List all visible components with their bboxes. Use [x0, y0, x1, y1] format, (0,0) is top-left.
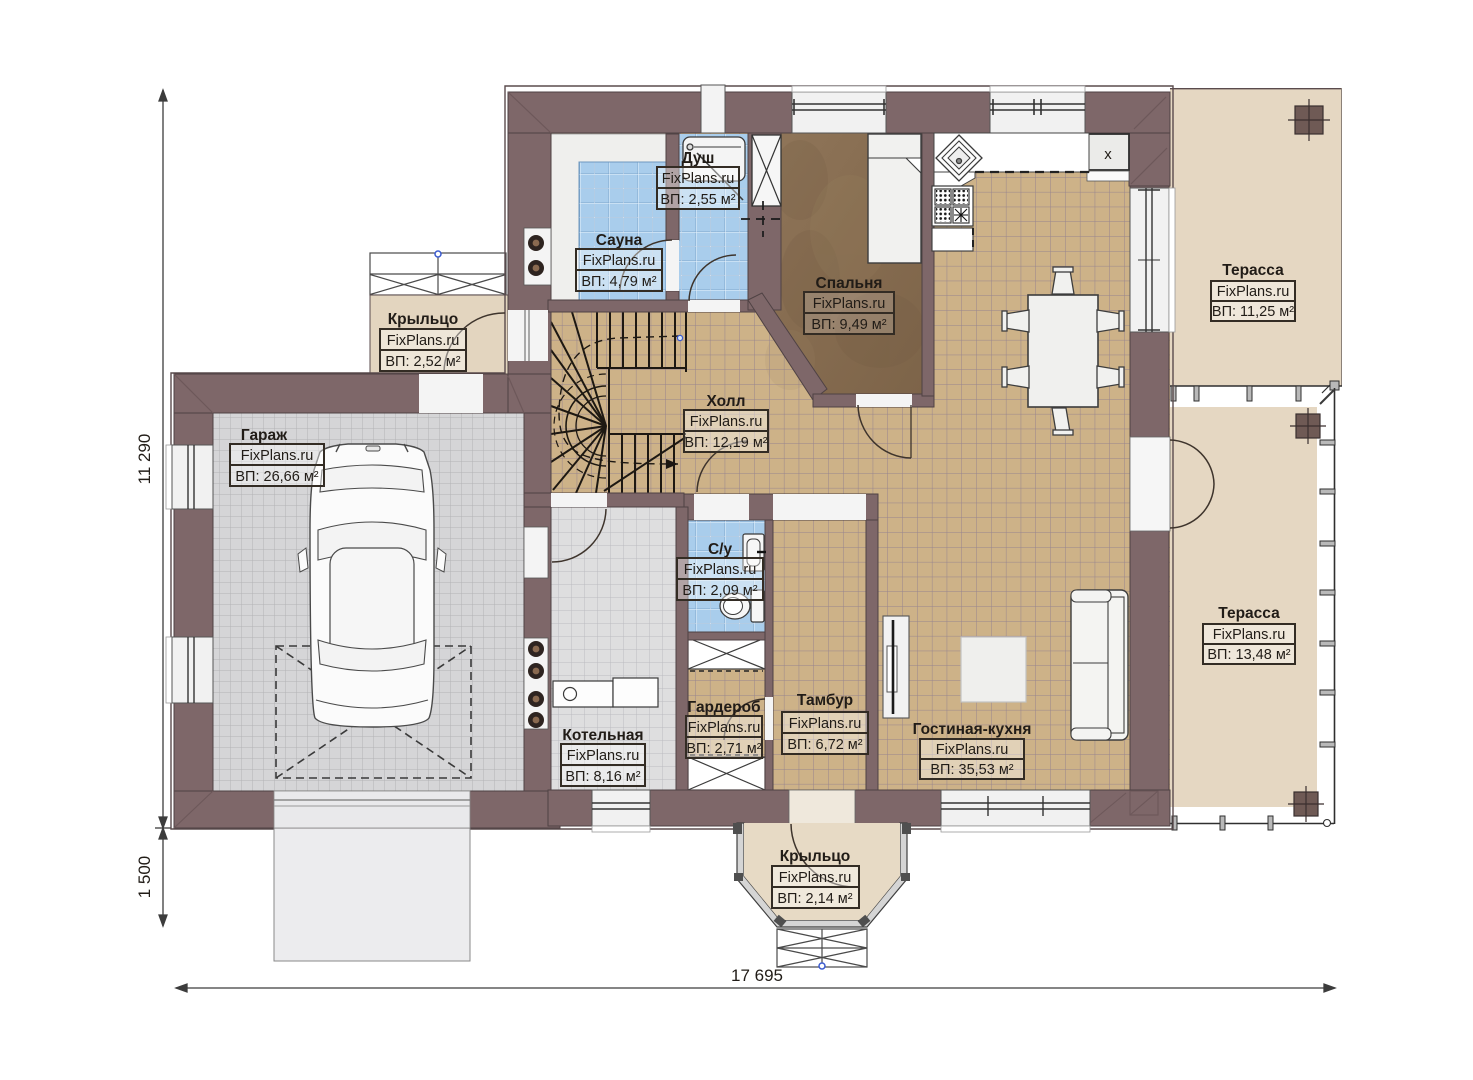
svg-text:ВП: 26,66 м²: ВП: 26,66 м² [235, 469, 318, 485]
svg-text:Терасса: Терасса [1222, 262, 1284, 279]
svg-text:FixPlans.ru: FixPlans.ru [567, 748, 640, 764]
svg-text:FixPlans.ru: FixPlans.ru [779, 870, 852, 886]
svg-text:Терасса: Терасса [1218, 605, 1280, 622]
svg-text:ВП: 12,19 м²: ВП: 12,19 м² [684, 435, 767, 451]
svg-text:ВП: 2,09 м²: ВП: 2,09 м² [682, 583, 757, 599]
svg-text:1 500: 1 500 [135, 856, 154, 899]
svg-text:ВП: 35,53 м²: ВП: 35,53 м² [930, 762, 1013, 778]
svg-text:Гостиная-кухня: Гостиная-кухня [913, 721, 1032, 738]
svg-text:FixPlans.ru: FixPlans.ru [387, 333, 460, 349]
svg-text:Душ: Душ [682, 150, 715, 167]
svg-text:ВП: 8,16 м²: ВП: 8,16 м² [565, 769, 640, 785]
svg-text:ВП: 2,14 м²: ВП: 2,14 м² [777, 891, 852, 907]
svg-text:ВП: 9,49 м²: ВП: 9,49 м² [811, 317, 886, 333]
svg-text:С/у: С/у [708, 541, 733, 558]
svg-text:FixPlans.ru: FixPlans.ru [1217, 284, 1290, 300]
svg-text:Котельная: Котельная [562, 727, 643, 744]
svg-text:FixPlans.ru: FixPlans.ru [583, 253, 656, 269]
svg-text:FixPlans.ru: FixPlans.ru [662, 171, 735, 187]
svg-text:Холл: Холл [707, 393, 746, 410]
svg-text:Тамбур: Тамбур [797, 692, 853, 709]
svg-text:ВП: 6,72 м²: ВП: 6,72 м² [787, 737, 862, 753]
svg-text:11 290: 11 290 [135, 434, 154, 485]
svg-text:ВП: 2,71 м²: ВП: 2,71 м² [686, 741, 761, 757]
svg-text:FixPlans.ru: FixPlans.ru [789, 716, 862, 732]
svg-text:Крыльцо: Крыльцо [388, 311, 459, 328]
svg-text:ВП: 2,52 м²: ВП: 2,52 м² [385, 354, 460, 370]
svg-text:Сауна: Сауна [596, 232, 643, 249]
svg-text:x: x [1104, 146, 1112, 163]
svg-text:Крыльцо: Крыльцо [780, 848, 851, 865]
svg-text:Спальня: Спальня [816, 275, 883, 292]
svg-text:Гардероб: Гардероб [687, 699, 760, 716]
svg-text:17 695: 17 695 [731, 966, 783, 985]
svg-text:ВП: 11,25 м²: ВП: 11,25 м² [1212, 304, 1294, 320]
svg-text:FixPlans.ru: FixPlans.ru [684, 562, 757, 578]
svg-text:FixPlans.ru: FixPlans.ru [241, 448, 314, 464]
svg-text:FixPlans.ru: FixPlans.ru [688, 720, 761, 736]
svg-text:FixPlans.ru: FixPlans.ru [813, 296, 886, 312]
svg-text:ВП: 13,48 м²: ВП: 13,48 м² [1207, 647, 1290, 663]
svg-text:FixPlans.ru: FixPlans.ru [1213, 627, 1286, 643]
svg-text:ВП: 4,79 м²: ВП: 4,79 м² [581, 274, 656, 290]
svg-text:ВП: 2,55 м²: ВП: 2,55 м² [660, 192, 735, 208]
svg-text:FixPlans.ru: FixPlans.ru [690, 414, 763, 430]
svg-text:Гараж: Гараж [241, 427, 288, 444]
svg-text:FixPlans.ru: FixPlans.ru [936, 742, 1009, 758]
